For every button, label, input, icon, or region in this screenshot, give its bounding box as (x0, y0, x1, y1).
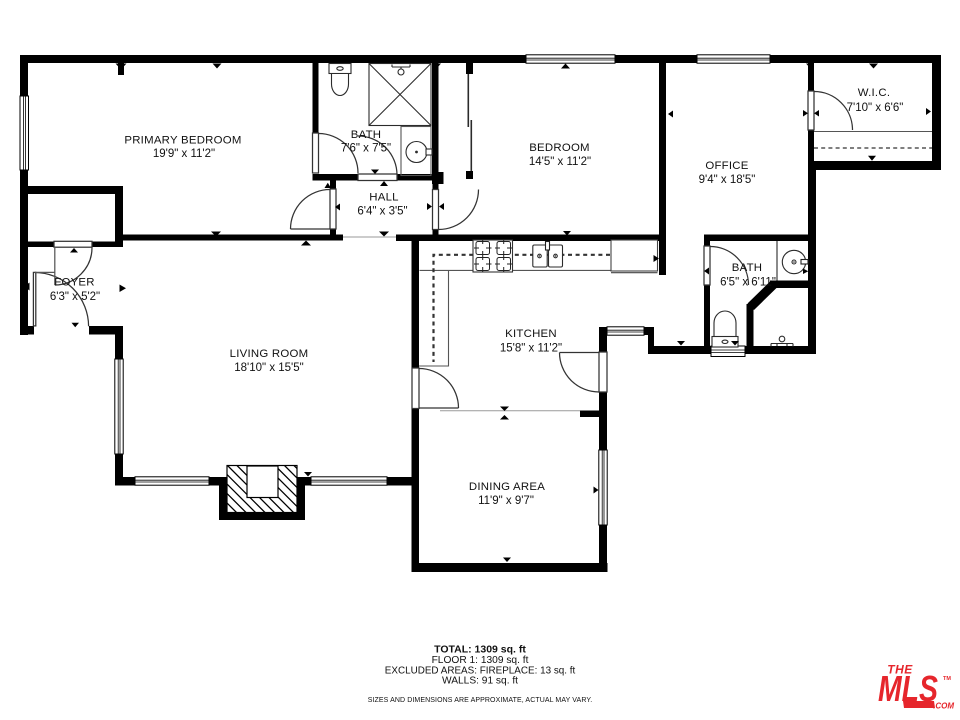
svg-text:11'9" x 9'7": 11'9" x 9'7" (478, 495, 534, 507)
svg-text:BATH: BATH (732, 262, 763, 274)
svg-text:DINING AREA: DINING AREA (469, 481, 545, 493)
svg-text:BEDROOM: BEDROOM (529, 142, 590, 154)
svg-text:6'4" x 3'5": 6'4" x 3'5" (357, 206, 407, 218)
svg-text:W.I.C.: W.I.C. (858, 87, 891, 99)
svg-text:7'10" x 6'6": 7'10" x 6'6" (847, 102, 904, 114)
svg-text:6'3" x 5'2": 6'3" x 5'2" (50, 291, 100, 303)
svg-text:LIVING ROOM: LIVING ROOM (230, 348, 309, 360)
svg-text:OFFICE: OFFICE (705, 160, 748, 172)
svg-text:19'9" x 11'2": 19'9" x 11'2" (153, 148, 215, 160)
svg-text:WALLS: 91 sq. ft: WALLS: 91 sq. ft (442, 675, 518, 686)
svg-text:BATH: BATH (351, 129, 382, 141)
svg-text:FOYER: FOYER (54, 277, 95, 289)
svg-text:PRIMARY BEDROOM: PRIMARY BEDROOM (124, 135, 241, 147)
svg-text:HALL: HALL (369, 192, 399, 204)
svg-text:TOTAL: 1309 sq. ft: TOTAL: 1309 sq. ft (434, 644, 526, 656)
svg-text:14'5" x 11'2": 14'5" x 11'2" (529, 156, 591, 168)
svg-text:18'10" x 15'5": 18'10" x 15'5" (234, 362, 303, 374)
svg-text:6'5" x 6'11": 6'5" x 6'11" (720, 277, 776, 289)
svg-text:9'4" x 18'5": 9'4" x 18'5" (699, 174, 756, 186)
svg-text:.COM: .COM (933, 702, 954, 711)
svg-text:TM: TM (943, 676, 951, 682)
svg-text:7'6" x 7'5": 7'6" x 7'5" (341, 143, 391, 155)
svg-text:15'8" x 11'2": 15'8" x 11'2" (500, 343, 562, 355)
svg-text:SIZES AND DIMENSIONS ARE APPRO: SIZES AND DIMENSIONS ARE APPROXIMATE, AC… (368, 697, 593, 704)
svg-text:KITCHEN: KITCHEN (505, 328, 557, 340)
